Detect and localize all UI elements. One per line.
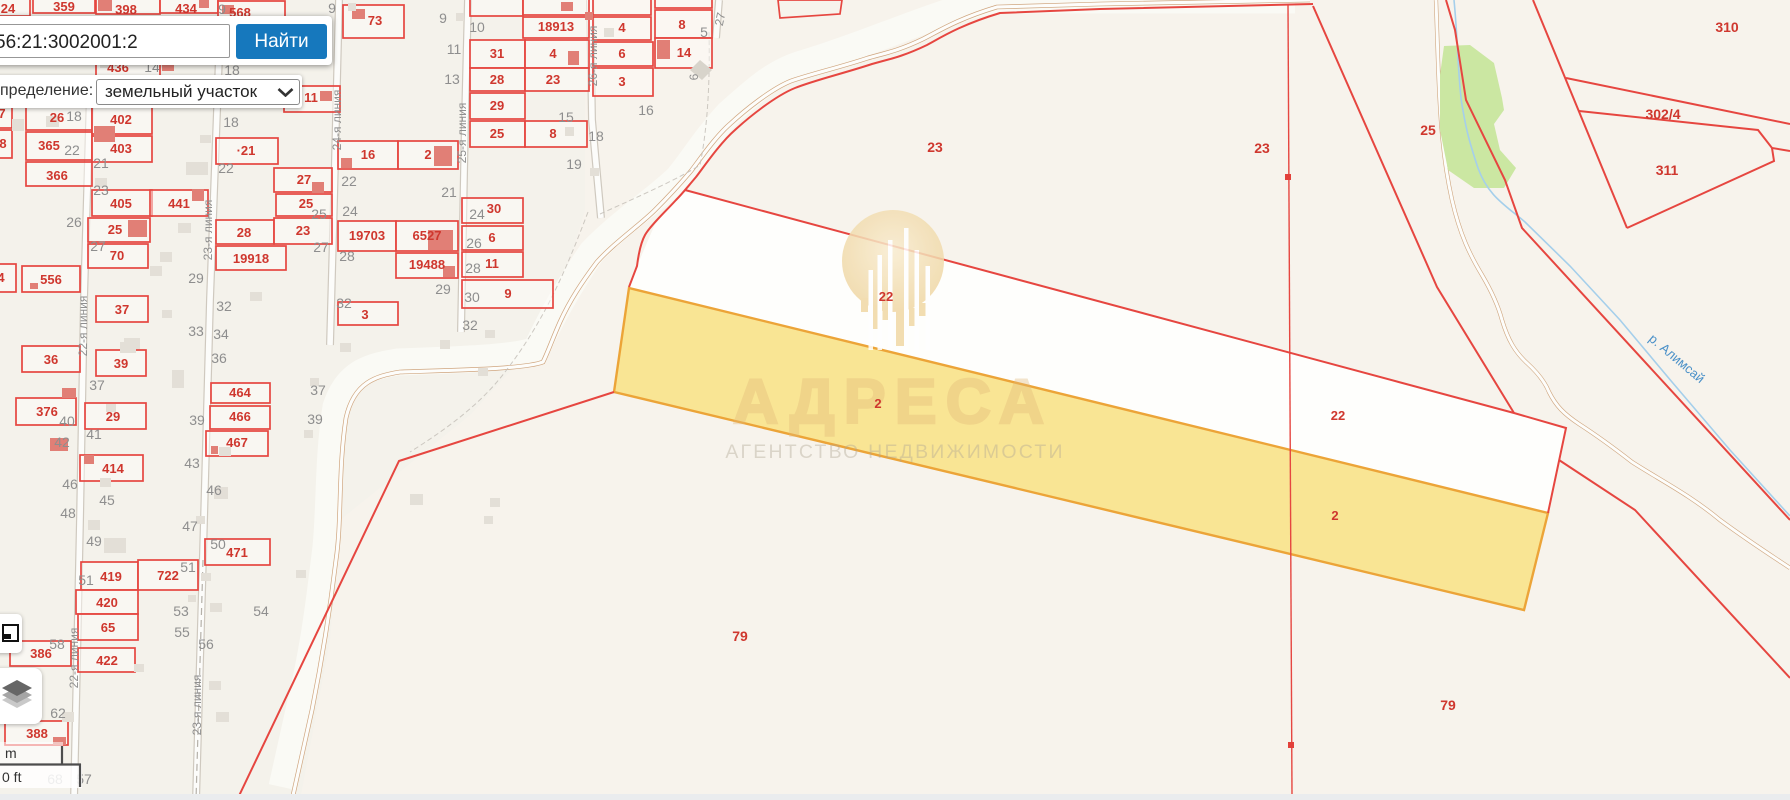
svg-text:4: 4 (618, 20, 626, 35)
svg-text:36: 36 (44, 352, 58, 367)
svg-text:359: 359 (53, 0, 75, 14)
svg-text:29: 29 (435, 281, 451, 297)
svg-text:58: 58 (49, 636, 65, 652)
svg-text:62: 62 (50, 705, 66, 721)
svg-text:13: 13 (444, 71, 460, 87)
svg-text:21: 21 (441, 184, 457, 200)
svg-text:18: 18 (588, 128, 604, 144)
svg-text:402: 402 (110, 112, 132, 127)
svg-text:53: 53 (173, 603, 189, 619)
svg-text:42: 42 (54, 434, 70, 450)
svg-text:51: 51 (180, 559, 196, 575)
svg-text:26-я линия: 26-я линия (586, 26, 600, 87)
svg-text:56: 56 (198, 636, 214, 652)
svg-text:55: 55 (174, 624, 190, 640)
svg-text:4: 4 (549, 46, 557, 61)
svg-text:11: 11 (304, 90, 318, 105)
svg-text:19918: 19918 (233, 251, 269, 266)
svg-text:9: 9 (218, 1, 226, 17)
svg-text:405: 405 (110, 196, 132, 211)
svg-text:9: 9 (439, 10, 447, 26)
svg-text:5: 5 (700, 24, 708, 40)
svg-text:366: 366 (46, 168, 68, 183)
svg-text:47: 47 (182, 518, 198, 534)
svg-text:22: 22 (879, 289, 893, 304)
svg-text:43: 43 (184, 455, 200, 471)
svg-text:22: 22 (1331, 408, 1345, 423)
svg-text:51: 51 (78, 572, 94, 588)
svg-text:6: 6 (488, 230, 495, 245)
svg-text:28: 28 (465, 260, 481, 276)
svg-text:31: 31 (490, 46, 504, 61)
svg-text:466: 466 (229, 409, 251, 424)
svg-text:26: 26 (50, 110, 64, 125)
svg-text:414: 414 (102, 461, 124, 476)
svg-text:24: 24 (1, 1, 16, 16)
svg-text:310: 310 (1715, 19, 1739, 35)
svg-text:22: 22 (341, 173, 357, 189)
svg-text:14: 14 (677, 45, 692, 60)
svg-text:11: 11 (447, 41, 462, 57)
svg-text:30: 30 (487, 201, 501, 216)
svg-text:11: 11 (485, 256, 499, 271)
svg-text:29: 29 (188, 270, 204, 286)
svg-text:422: 422 (96, 653, 118, 668)
svg-text:33: 33 (188, 323, 204, 339)
svg-text:28: 28 (339, 248, 355, 264)
svg-text:8: 8 (549, 126, 556, 141)
svg-text:40: 40 (59, 413, 75, 429)
svg-text:4: 4 (0, 270, 5, 285)
svg-text:37: 37 (310, 382, 326, 398)
svg-text:464: 464 (229, 385, 251, 400)
svg-text:27: 27 (313, 239, 329, 255)
svg-text:24: 24 (469, 206, 485, 222)
svg-text:2: 2 (1331, 508, 1338, 523)
svg-text:41: 41 (86, 426, 102, 442)
svg-text:24: 24 (342, 203, 358, 219)
svg-text:21: 21 (93, 155, 109, 171)
svg-text:23: 23 (93, 182, 109, 198)
svg-text:70: 70 (110, 248, 124, 263)
svg-text:48: 48 (60, 505, 76, 521)
svg-text:8: 8 (0, 136, 7, 151)
svg-text:28: 28 (490, 72, 504, 87)
svg-text:24-я линия: 24-я линия (330, 90, 344, 151)
svg-text:19: 19 (566, 156, 582, 172)
svg-text:6527: 6527 (413, 228, 442, 243)
svg-text:26: 26 (466, 235, 482, 251)
svg-text:50: 50 (210, 536, 226, 552)
svg-text:АГЕНТСТВО НЕДВИЖИМОСТИ: АГЕНТСТВО НЕДВИЖИМОСТИ (725, 441, 1064, 463)
svg-text:АДРЕСА: АДРЕСА (733, 367, 1053, 437)
svg-text:45: 45 (99, 492, 115, 508)
svg-text:441: 441 (168, 196, 190, 211)
svg-text:39: 39 (307, 411, 323, 427)
svg-text:25-я линия: 25-я линия (455, 103, 469, 164)
svg-text:23: 23 (546, 72, 560, 87)
svg-text:3: 3 (618, 74, 625, 89)
svg-text:19703: 19703 (349, 228, 385, 243)
svg-text:398: 398 (115, 2, 137, 17)
svg-text:15: 15 (558, 109, 574, 125)
svg-text:39: 39 (114, 356, 128, 371)
svg-text:23: 23 (296, 223, 310, 238)
svg-text:23: 23 (927, 139, 943, 155)
svg-text:471: 471 (226, 545, 248, 560)
svg-text:10: 10 (469, 19, 485, 35)
svg-text:46: 46 (206, 482, 222, 498)
svg-text:467: 467 (226, 435, 248, 450)
svg-text:46: 46 (62, 476, 78, 492)
svg-text:6: 6 (618, 46, 625, 61)
svg-text:32: 32 (462, 317, 478, 333)
svg-text:39: 39 (189, 412, 205, 428)
svg-text:7: 7 (0, 106, 6, 121)
svg-text:34: 34 (213, 326, 229, 342)
svg-text:722: 722 (157, 568, 179, 583)
svg-text:9: 9 (328, 0, 336, 16)
svg-text:18: 18 (223, 114, 239, 130)
svg-text:16: 16 (638, 102, 654, 118)
svg-text:388: 388 (26, 726, 48, 741)
svg-text:556: 556 (40, 272, 62, 287)
svg-text:365: 365 (38, 138, 60, 153)
svg-text:79: 79 (732, 628, 748, 644)
svg-text:·21: ·21 (237, 143, 256, 158)
svg-text:403: 403 (110, 141, 132, 156)
svg-text:22: 22 (64, 142, 80, 158)
svg-text:18913: 18913 (538, 19, 574, 34)
svg-text:434: 434 (175, 1, 197, 16)
svg-text:27: 27 (297, 172, 311, 187)
svg-text:420: 420 (96, 595, 118, 610)
svg-text:419: 419 (100, 569, 122, 584)
svg-text:25: 25 (108, 222, 122, 237)
svg-text:2: 2 (874, 396, 881, 411)
svg-text:36: 36 (211, 350, 227, 366)
svg-text:27: 27 (90, 238, 106, 254)
svg-text:9: 9 (504, 286, 511, 301)
svg-text:32: 32 (336, 295, 352, 311)
svg-text:2: 2 (424, 147, 431, 162)
svg-text:26: 26 (66, 214, 82, 230)
svg-text:73: 73 (368, 13, 382, 28)
svg-text:28: 28 (237, 225, 251, 240)
svg-text:32: 32 (216, 298, 232, 314)
svg-text:22-я линия: 22-я линия (76, 296, 90, 357)
svg-text:18: 18 (66, 108, 82, 124)
svg-text:376: 376 (36, 404, 58, 419)
svg-text:30: 30 (464, 289, 480, 305)
svg-text:302/4: 302/4 (1645, 106, 1680, 122)
svg-text:49: 49 (86, 533, 102, 549)
svg-text:29: 29 (490, 98, 504, 113)
svg-text:16: 16 (361, 147, 375, 162)
svg-text:65: 65 (101, 620, 115, 635)
svg-text:79: 79 (1440, 697, 1456, 713)
svg-text:54: 54 (253, 603, 269, 619)
svg-text:25: 25 (490, 126, 504, 141)
svg-text:37: 37 (115, 302, 129, 317)
svg-text:29: 29 (106, 409, 120, 424)
svg-text:19488: 19488 (409, 257, 445, 272)
svg-text:25: 25 (1420, 122, 1436, 138)
svg-text:3: 3 (361, 307, 368, 322)
svg-text:22: 22 (218, 160, 234, 176)
svg-text:22-я линия: 22-я линия (67, 628, 81, 689)
svg-text:37: 37 (89, 377, 105, 393)
svg-text:6: 6 (687, 73, 701, 80)
svg-text:25: 25 (311, 206, 327, 222)
svg-text:23: 23 (1254, 140, 1270, 156)
svg-text:8: 8 (678, 17, 685, 32)
svg-text:23-я линия: 23-я линия (201, 200, 215, 261)
svg-text:23-я линия: 23-я линия (190, 675, 204, 736)
svg-text:311: 311 (1656, 162, 1679, 178)
